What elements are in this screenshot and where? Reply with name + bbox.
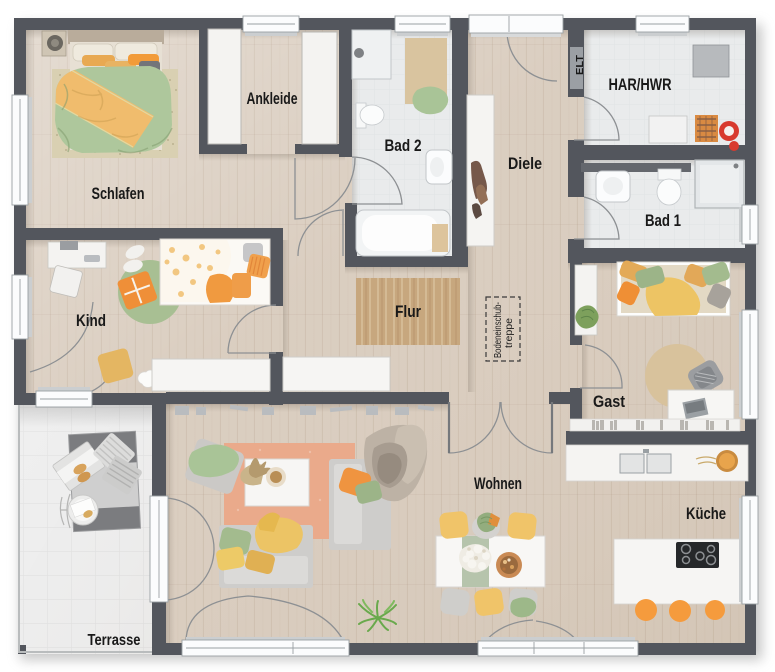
svg-text:Gast: Gast (593, 392, 625, 411)
svg-text:Terrasse: Terrasse (88, 632, 141, 649)
svg-text:Diele: Diele (508, 154, 542, 173)
svg-text:Bad 2: Bad 2 (385, 136, 422, 155)
svg-text:Ankleide: Ankleide (247, 89, 298, 108)
svg-text:Schlafen: Schlafen (92, 184, 145, 203)
svg-text:treppe: treppe (503, 318, 515, 348)
svg-text:Bad 1: Bad 1 (645, 211, 681, 230)
svg-text:Wohnen: Wohnen (474, 474, 522, 493)
svg-text:Küche: Küche (686, 504, 726, 523)
svg-text:Flur: Flur (395, 302, 421, 321)
svg-text:HAR/HWR: HAR/HWR (609, 75, 672, 94)
svg-text:Kind: Kind (76, 311, 106, 330)
svg-text:ELT: ELT (574, 54, 586, 75)
